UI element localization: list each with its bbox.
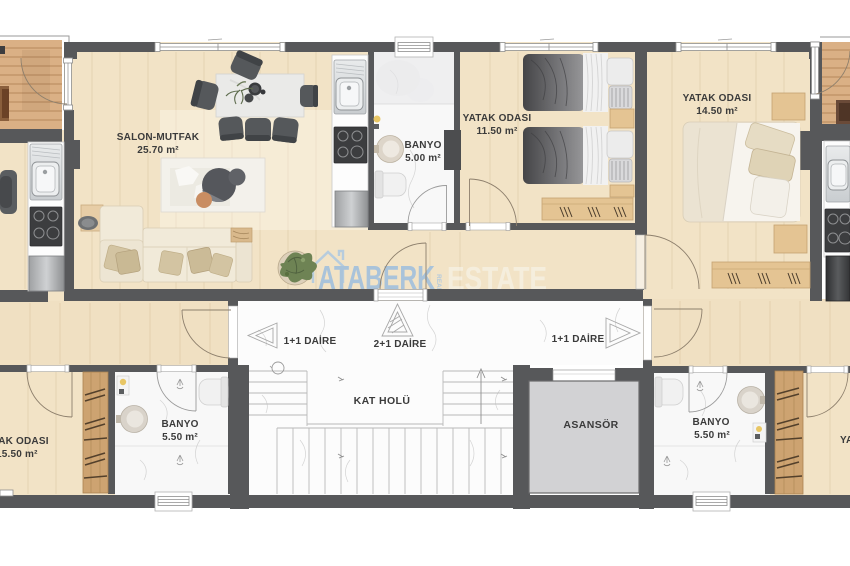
svg-text:15.50 m²: 15.50 m² — [0, 449, 38, 460]
svg-text:14.50 m²: 14.50 m² — [696, 106, 738, 117]
svg-text:SALON-MUTFAK: SALON-MUTFAK — [117, 132, 200, 143]
svg-text:5.50 m²: 5.50 m² — [162, 432, 198, 443]
svg-text:5.50 m²: 5.50 m² — [694, 430, 730, 441]
svg-text:YATAK ODASI: YATAK ODASI — [0, 436, 49, 447]
svg-text:KAT HOLÜ: KAT HOLÜ — [354, 394, 411, 407]
svg-text:5.00 m²: 5.00 m² — [405, 153, 441, 164]
svg-text:1+1 DAİRE: 1+1 DAİRE — [284, 334, 337, 347]
svg-text:25.70 m²: 25.70 m² — [137, 145, 179, 156]
svg-text:11.50 m²: 11.50 m² — [476, 126, 518, 137]
svg-text:YATAK ODASI: YATAK ODASI — [683, 93, 752, 104]
svg-text:ASANSÖR: ASANSÖR — [563, 418, 618, 431]
svg-text:YATAK ODASI: YATAK ODASI — [463, 113, 532, 124]
svg-text:2+1 DAİRE: 2+1 DAİRE — [374, 337, 427, 350]
svg-text:BANYO: BANYO — [161, 419, 198, 430]
svg-text:1+1 DAİRE: 1+1 DAİRE — [552, 332, 605, 345]
svg-text:BANYO: BANYO — [404, 140, 441, 151]
svg-text:YATAK ODASI: YATAK ODASI — [840, 435, 850, 446]
svg-text:BANYO: BANYO — [692, 417, 729, 428]
